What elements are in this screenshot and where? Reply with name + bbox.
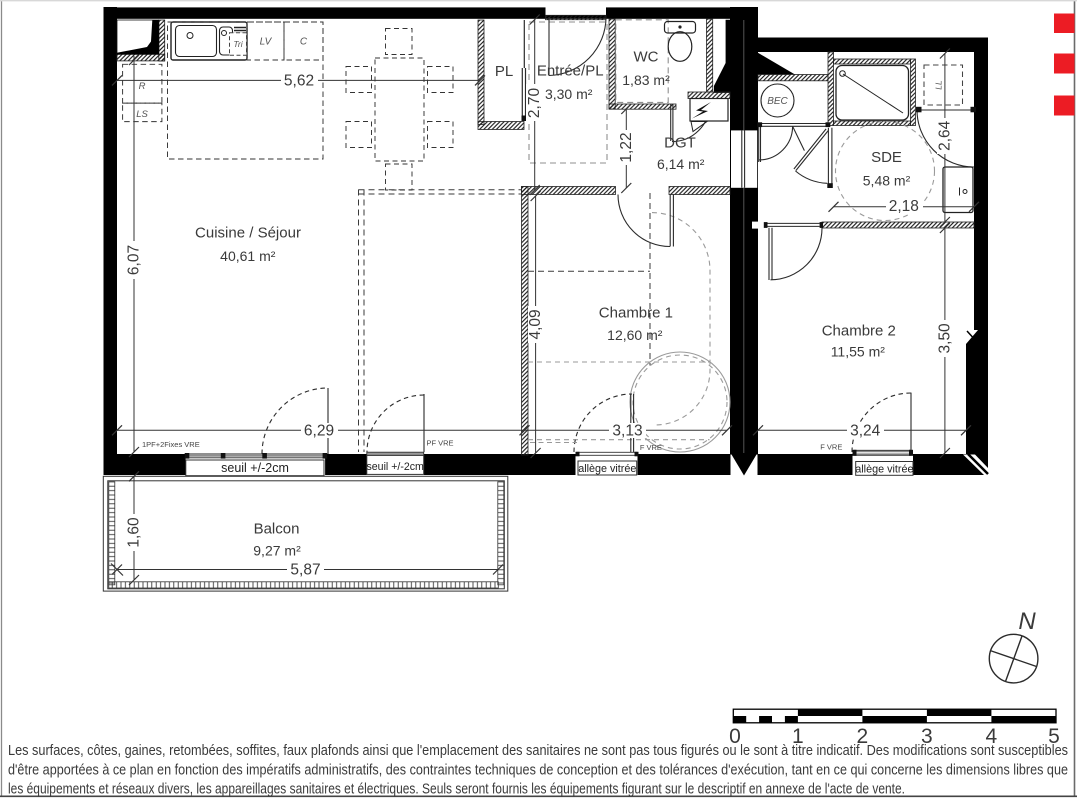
svg-text:BEC: BEC bbox=[767, 96, 788, 107]
svg-text:N: N bbox=[1018, 608, 1036, 635]
svg-text:3,30 m²: 3,30 m² bbox=[545, 86, 593, 102]
svg-text:9,27 m²: 9,27 m² bbox=[253, 542, 301, 558]
svg-text:d'être apportées à ce plan en: d'être apportées à ce plan en fonction d… bbox=[8, 763, 1068, 779]
svg-text:PL: PL bbox=[495, 63, 513, 80]
svg-text:Chambre 2: Chambre 2 bbox=[822, 322, 896, 339]
svg-text:5,62: 5,62 bbox=[284, 72, 314, 89]
svg-text:Les surfaces, côtes, gaines, r: Les surfaces, côtes, gaines, retombées, … bbox=[8, 743, 1068, 759]
svg-text:allège vitrée: allège vitrée bbox=[578, 463, 636, 475]
svg-text:Chambre 1: Chambre 1 bbox=[599, 305, 673, 322]
svg-text:LL: LL bbox=[934, 80, 944, 90]
svg-text:3,13: 3,13 bbox=[612, 422, 642, 439]
svg-text:Balcon: Balcon bbox=[254, 521, 300, 538]
svg-text:1,83 m²: 1,83 m² bbox=[622, 72, 670, 88]
svg-text:40,61 m²: 40,61 m² bbox=[220, 248, 276, 264]
svg-text:LV: LV bbox=[260, 37, 273, 48]
svg-text:Cuisine / Séjour: Cuisine / Séjour bbox=[195, 225, 301, 242]
svg-text:WC: WC bbox=[634, 49, 659, 66]
svg-text:2,18: 2,18 bbox=[889, 198, 919, 215]
svg-text:5,87: 5,87 bbox=[290, 562, 320, 579]
svg-text:SDE: SDE bbox=[871, 149, 902, 166]
svg-text:LS: LS bbox=[136, 109, 148, 120]
svg-text:1,60: 1,60 bbox=[126, 517, 143, 548]
svg-text:2,64: 2,64 bbox=[936, 120, 953, 151]
svg-text:DGT: DGT bbox=[664, 135, 696, 152]
svg-text:les équipements et réseaux div: les équipements et réseaux divers, les a… bbox=[8, 782, 905, 798]
svg-text:2,70: 2,70 bbox=[526, 88, 543, 119]
svg-text:6,14 m²: 6,14 m² bbox=[657, 156, 705, 172]
svg-text:4,09: 4,09 bbox=[527, 309, 544, 339]
svg-text:R: R bbox=[139, 81, 146, 92]
svg-text:12,60 m²: 12,60 m² bbox=[607, 327, 663, 343]
svg-text:1,22: 1,22 bbox=[618, 132, 635, 162]
svg-text:C: C bbox=[300, 37, 308, 48]
svg-text:3,24: 3,24 bbox=[850, 422, 881, 439]
svg-text:allège vitrée: allège vitrée bbox=[855, 463, 913, 475]
svg-text:F VRE: F VRE bbox=[820, 442, 842, 451]
svg-text:5,48 m²: 5,48 m² bbox=[863, 172, 911, 188]
svg-text:PF VRE: PF VRE bbox=[426, 438, 453, 447]
svg-text:F VRE: F VRE bbox=[640, 443, 662, 452]
svg-text:1PF+2Fixes VRE: 1PF+2Fixes VRE bbox=[142, 440, 200, 449]
svg-text:seuil +/-2cm: seuil +/-2cm bbox=[366, 461, 424, 473]
svg-text:6,07: 6,07 bbox=[126, 245, 143, 275]
svg-text:seuil +/-2cm: seuil +/-2cm bbox=[221, 461, 289, 475]
svg-text:Entrée/PL: Entrée/PL bbox=[537, 63, 604, 80]
svg-text:6,29: 6,29 bbox=[304, 422, 334, 439]
svg-text:11,55 m²: 11,55 m² bbox=[831, 343, 886, 359]
svg-text:3,50: 3,50 bbox=[936, 323, 953, 354]
svg-text:Tri: Tri bbox=[233, 39, 243, 49]
